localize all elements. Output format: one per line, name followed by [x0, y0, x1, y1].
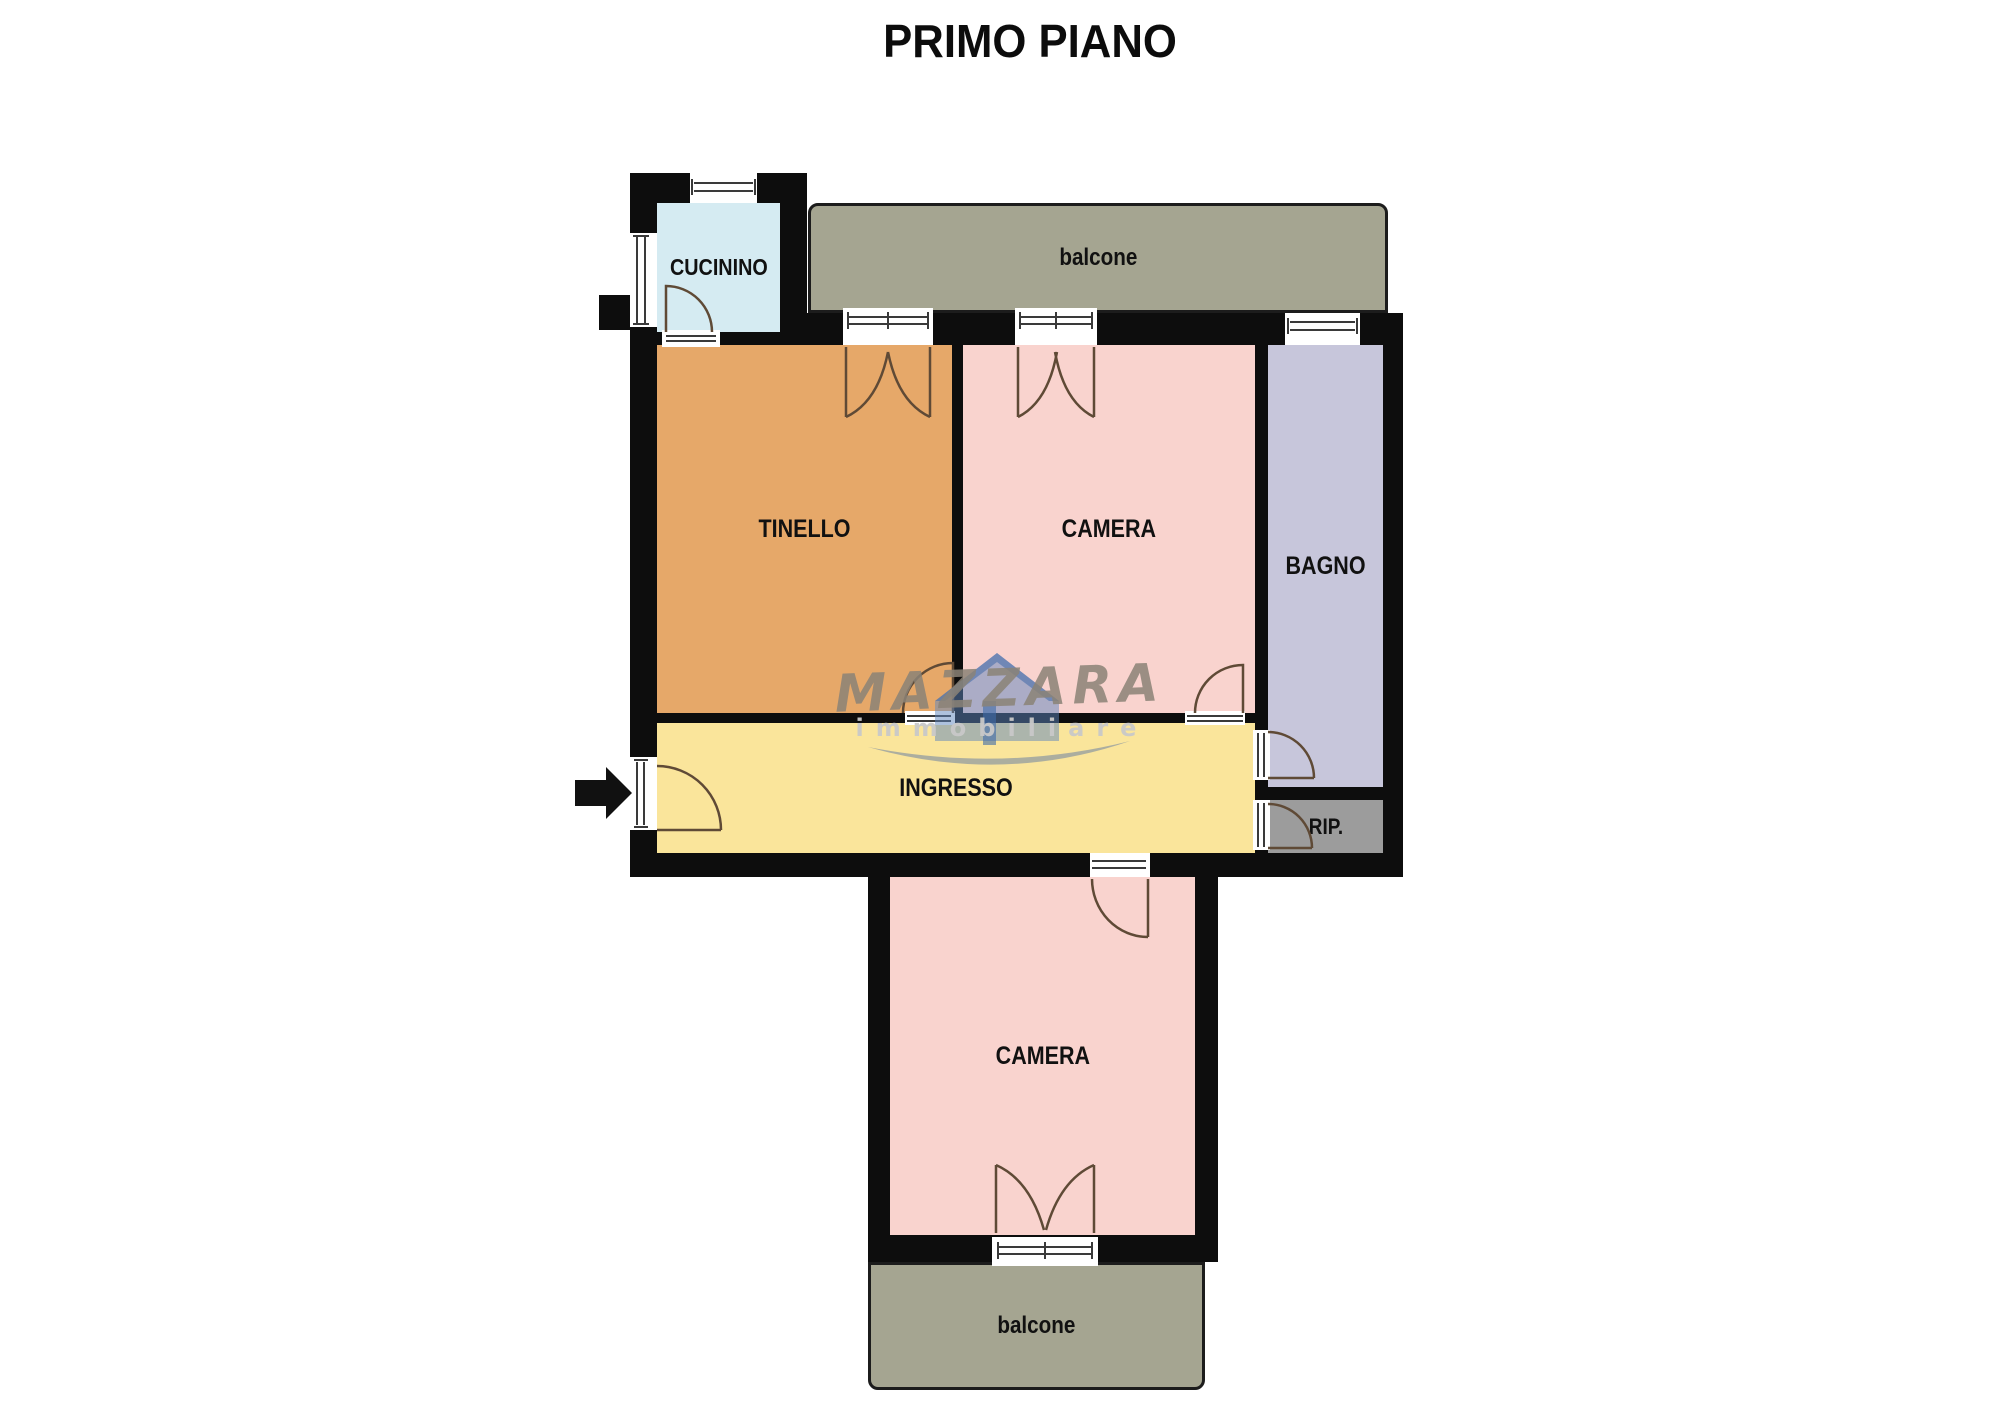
- wall-tinello-camera: [952, 345, 963, 713]
- wall-ingresso-top: [657, 713, 1255, 723]
- wall-bagno-left: [1255, 345, 1268, 877]
- window-bagno: [1285, 313, 1360, 345]
- wall-bottom-main: [630, 853, 1403, 877]
- room-label-camera-top: CAMERA: [1062, 515, 1156, 544]
- room-bagno: BAGNO: [1268, 345, 1383, 787]
- window-cucinino-top: [690, 173, 757, 203]
- doorway-entrance: [630, 757, 657, 830]
- floor-plan: PRIMO PIANO CUCININO balcone TINELLO CAM…: [0, 0, 2000, 1414]
- room-tinello: TINELLO: [657, 345, 952, 713]
- wall-camera-bottom-left: [868, 877, 890, 1262]
- french-door-camera-top: [1015, 308, 1097, 345]
- plan-title: PRIMO PIANO: [650, 14, 1410, 68]
- doorway-cucinino: [662, 330, 720, 347]
- doorway-camera-top: [1185, 711, 1245, 725]
- room-label-bagno: BAGNO: [1285, 552, 1365, 581]
- room-camera-top: CAMERA: [963, 345, 1255, 713]
- french-door-camera-bottom: [992, 1237, 1098, 1266]
- room-label-camera-bottom: CAMERA: [995, 1042, 1089, 1071]
- room-camera-bottom: CAMERA: [890, 877, 1195, 1235]
- room-label-tinello: TINELLO: [759, 515, 851, 544]
- doorway-tinello: [905, 711, 955, 725]
- room-balcone-top: balcone: [808, 203, 1388, 313]
- room-balcone-bottom: balcone: [868, 1262, 1205, 1390]
- wall-cucinino-right: [780, 173, 807, 345]
- wall-left-protrusion: [599, 295, 630, 330]
- wall-camera-bottom-right: [1195, 877, 1218, 1262]
- room-label-balcone-bottom: balcone: [997, 1312, 1075, 1340]
- room-label-balcone-top: balcone: [1059, 244, 1137, 272]
- room-label-cucinino: CUCININO: [670, 254, 768, 281]
- room-label-rip: RIP.: [1308, 814, 1342, 840]
- doorway-bagno: [1253, 730, 1270, 780]
- room-cucinino: CUCININO: [657, 203, 780, 332]
- doorway-camera-bottom: [1090, 853, 1150, 877]
- wall-bagno-rip: [1268, 787, 1385, 800]
- doorway-rip: [1253, 800, 1270, 850]
- wall-right-outer: [1383, 313, 1403, 877]
- french-door-tinello: [843, 308, 933, 345]
- entrance-arrow-icon: [575, 767, 632, 819]
- room-label-ingresso: INGRESSO: [899, 774, 1013, 803]
- room-ingresso: INGRESSO: [657, 723, 1255, 853]
- room-rip: RIP.: [1268, 800, 1383, 853]
- window-cucinino-left: [630, 233, 657, 327]
